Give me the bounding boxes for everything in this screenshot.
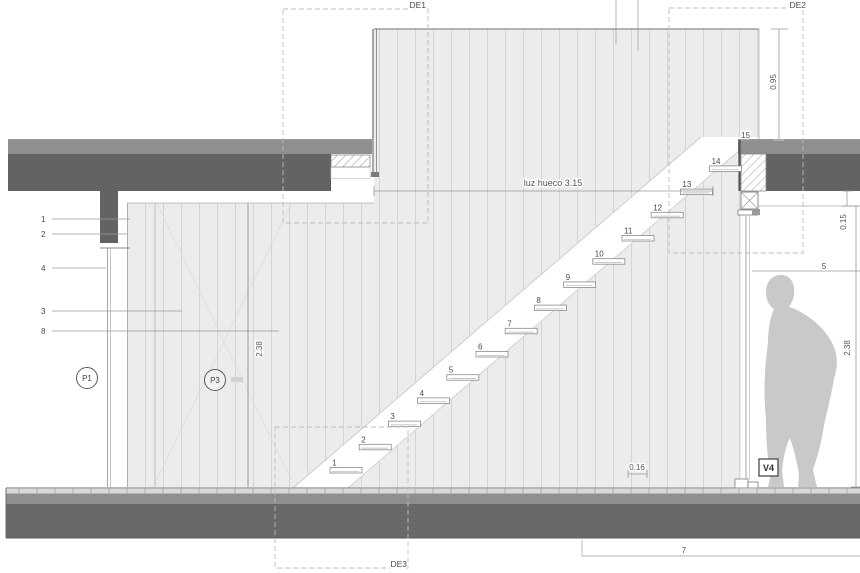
ceiling-gap-dim-text: 0.15 [839, 214, 848, 230]
tread [505, 328, 537, 334]
tread-number: 3 [390, 412, 395, 421]
tread [622, 236, 654, 242]
tread-number: 7 [507, 319, 512, 328]
parapet-dim-text: 0.95 [769, 74, 778, 90]
tread-number: 2 [361, 435, 366, 444]
tread-number: 11 [624, 227, 633, 236]
floor-structure [6, 504, 860, 538]
floor-screed [6, 494, 860, 505]
p3-text: P3 [210, 376, 220, 385]
detail-label-de3: DE3 [390, 559, 407, 569]
stair-section-drawing: 123456789101112131415 DE1 DE2 DE3 luz hu… [0, 0, 860, 573]
right-height-dim-text: 2.38 [843, 340, 852, 356]
tread-number: 9 [566, 273, 571, 282]
tread [359, 444, 391, 450]
left-height-dim-text: 2.38 [255, 341, 264, 357]
tread [534, 305, 566, 311]
tread-number-top: 15 [741, 131, 750, 140]
tread [388, 421, 420, 427]
tread [710, 166, 742, 172]
tread [330, 468, 362, 474]
window-tag-v4: V4 [759, 459, 778, 476]
window-sill-block [735, 479, 748, 488]
right-slab-screed [738, 141, 860, 154]
tread-number: 13 [682, 180, 691, 189]
p1-text: P1 [82, 374, 92, 383]
tread [564, 282, 596, 288]
wall-tag-p1: P1 [77, 368, 98, 389]
left-slab-structure [8, 154, 330, 191]
tread-number: 8 [536, 296, 541, 305]
tread [593, 259, 625, 265]
tread [447, 375, 479, 381]
tread [680, 189, 712, 195]
tread [651, 212, 683, 218]
callout-8: 8 [41, 327, 46, 336]
downstand-beam [100, 191, 118, 243]
tread-number: 1 [332, 459, 337, 468]
tread [418, 398, 450, 404]
tread [476, 352, 508, 358]
v4-text: V4 [763, 463, 774, 473]
opening-dim-text: luz hueco 3.15 [524, 178, 583, 188]
right-slab-insulation-hatch [741, 154, 766, 191]
callout-2: 2 [41, 230, 46, 239]
ground-floor-slab [6, 488, 860, 538]
callout-5: 5 [822, 262, 827, 271]
tread-number: 14 [712, 157, 721, 166]
p3-pointer-mark [231, 377, 243, 382]
section-canvas: 123456789101112131415 DE1 DE2 DE3 luz hu… [0, 0, 860, 573]
tread-number: 5 [449, 366, 454, 375]
tread-number: 12 [653, 203, 662, 212]
left-slab-screed [8, 141, 372, 154]
right-slab-structure [766, 154, 860, 191]
frame-bracket-block [752, 209, 760, 215]
lower-left-wall-panel [127, 203, 374, 487]
left-slab-edge-box [331, 168, 370, 179]
left-slab-insulation-hatch [331, 155, 370, 167]
wall-edge-cap [371, 172, 379, 177]
tread-number: 10 [595, 250, 604, 259]
callout-3: 3 [41, 307, 46, 316]
window-sill-step [748, 482, 758, 488]
callout-4: 4 [41, 264, 46, 273]
tread-number: 6 [478, 343, 483, 352]
detail-label-de2: DE2 [789, 0, 806, 10]
plank-dim-text: 0.16 [629, 463, 645, 472]
callout-1: 1 [41, 215, 46, 224]
callout-7: 7 [682, 546, 687, 555]
detail-label-de1: DE1 [409, 0, 426, 10]
tread-number: 4 [420, 389, 425, 398]
